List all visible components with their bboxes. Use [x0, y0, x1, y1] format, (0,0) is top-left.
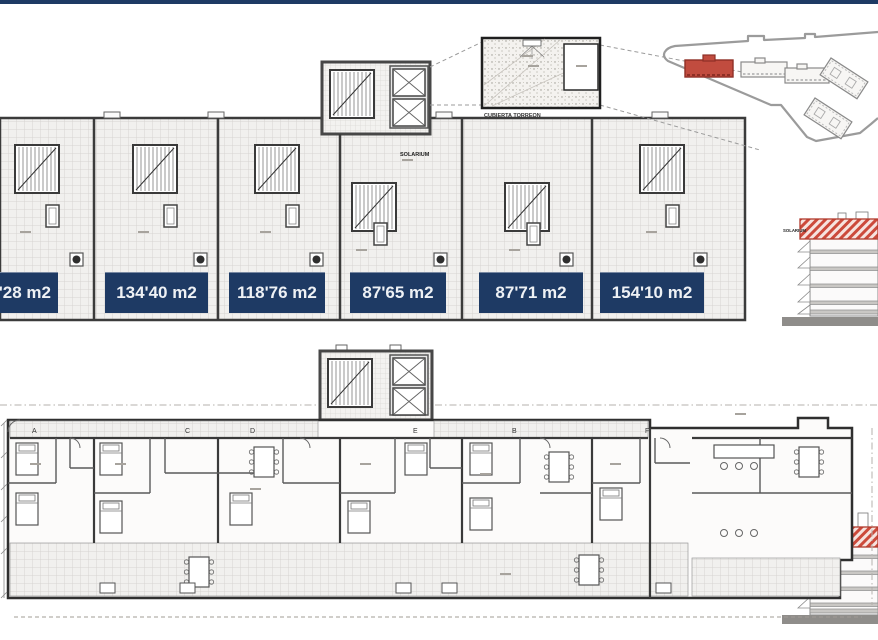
- tiny-label: [356, 249, 367, 251]
- area-label: 118'76 m2: [237, 283, 317, 303]
- building-outline: [804, 98, 852, 139]
- stair-elevator-core: [322, 62, 430, 134]
- bed-icon: [100, 443, 122, 475]
- bed-icon: [348, 501, 370, 533]
- grid-letter: B: [512, 428, 517, 435]
- highlighted-building: [685, 55, 733, 77]
- tiny-label: [500, 573, 511, 575]
- elevator-icon: [393, 99, 425, 126]
- area-label-box: 87'65 m2: [350, 272, 446, 313]
- area-label: 154'10 m2: [612, 283, 693, 303]
- area-label: 4'28 m2: [0, 283, 51, 303]
- tiny-label: [360, 463, 371, 465]
- stair-icon: [640, 145, 684, 193]
- vent-icon: [194, 253, 207, 266]
- grid-letter: D: [250, 428, 255, 435]
- area-label-box: 118'76 m2: [229, 272, 325, 313]
- plan-slide: SOLARIUM CUBIERTA TORREON 4'28 m2 134'40…: [0, 0, 878, 640]
- skylight: [527, 223, 540, 245]
- bed-icon: [16, 493, 38, 525]
- tiny-label: [646, 231, 657, 233]
- bed-icon: [16, 443, 38, 475]
- building-outline: [820, 58, 868, 99]
- stair-icon: [328, 359, 372, 407]
- area-label-box: 134'40 m2: [105, 272, 208, 313]
- tiny-label: [735, 413, 746, 415]
- tiny-label: [522, 55, 533, 57]
- ground: [782, 317, 878, 326]
- bed-icon: [600, 488, 622, 520]
- inset-caption: CUBIERTA TORREON: [484, 113, 541, 119]
- building-outline: [741, 58, 787, 77]
- stair-icon: [255, 145, 299, 193]
- tiny-label: [138, 231, 149, 233]
- terrace-table-icon: [574, 555, 603, 585]
- area-label: 87'71 m2: [495, 283, 566, 303]
- tiny-label: [115, 463, 126, 465]
- grid-letter: E: [413, 428, 418, 435]
- terrace-strip: [10, 421, 318, 438]
- vent-icon: [310, 253, 323, 266]
- dimension-line: [1, 420, 7, 598]
- tiny-label: [260, 231, 271, 233]
- bed-icon: [100, 501, 122, 533]
- tower-roof-detail-inset: CUBIERTA TORREON: [482, 38, 600, 119]
- bed-icon: [470, 443, 492, 475]
- tiny-label: [528, 65, 539, 67]
- dining-table-icon: [249, 447, 278, 477]
- tiny-label: [30, 463, 41, 465]
- skylight: [286, 205, 299, 227]
- stair-icon: [15, 145, 59, 193]
- roof-center-label: SOLARIUM: [400, 152, 430, 158]
- grid-letter: C: [185, 428, 190, 435]
- stair-elevator-core: [320, 345, 432, 420]
- skylight: [374, 223, 387, 245]
- area-label: 134'40 m2: [116, 283, 197, 303]
- vent-icon: [560, 253, 573, 266]
- tiny-label: [402, 159, 413, 161]
- skylight: [666, 205, 679, 227]
- tiny-label: [610, 463, 621, 465]
- bed-icon: [230, 493, 252, 525]
- section-solarium: SOLARIUM: [782, 210, 878, 335]
- vent-icon: [434, 253, 447, 266]
- planta-6-floor-plan: A C D E B F: [0, 343, 878, 633]
- dining-table-icon: [794, 447, 823, 477]
- elevator-icon: [393, 358, 425, 385]
- section-label: SOLARIUM: [783, 228, 806, 233]
- balconies: [798, 241, 810, 314]
- bed-icon: [405, 443, 427, 475]
- area-label: 87'65 m2: [362, 283, 433, 303]
- area-label-box: 154'10 m2: [600, 272, 704, 313]
- grid-letter: A: [32, 428, 37, 435]
- dining-table-icon: [544, 452, 573, 482]
- vent-icon: [70, 253, 83, 266]
- tiny-label: [20, 231, 31, 233]
- tiny-label: [250, 488, 261, 490]
- stair-icon: [133, 145, 177, 193]
- tiny-label: [480, 473, 491, 475]
- grid-letter: F: [645, 428, 649, 435]
- tiny-label: [576, 65, 587, 67]
- top-border-bar: [0, 0, 878, 4]
- skylight: [46, 205, 59, 227]
- elevator-icon: [393, 69, 425, 96]
- area-label-box: 87'71 m2: [479, 272, 583, 313]
- stair-icon: [330, 70, 374, 118]
- tiny-label: [509, 249, 520, 251]
- bed-icon: [470, 498, 492, 530]
- terrace-strip: [434, 421, 648, 438]
- elevator-icon: [393, 388, 425, 415]
- highlighted-level: [800, 219, 878, 239]
- terrace-strip: [692, 558, 840, 596]
- vent-icon: [694, 253, 707, 266]
- skylight: [164, 205, 177, 227]
- site-location-map: [655, 20, 878, 148]
- area-label-box: 4'28 m2: [0, 272, 58, 313]
